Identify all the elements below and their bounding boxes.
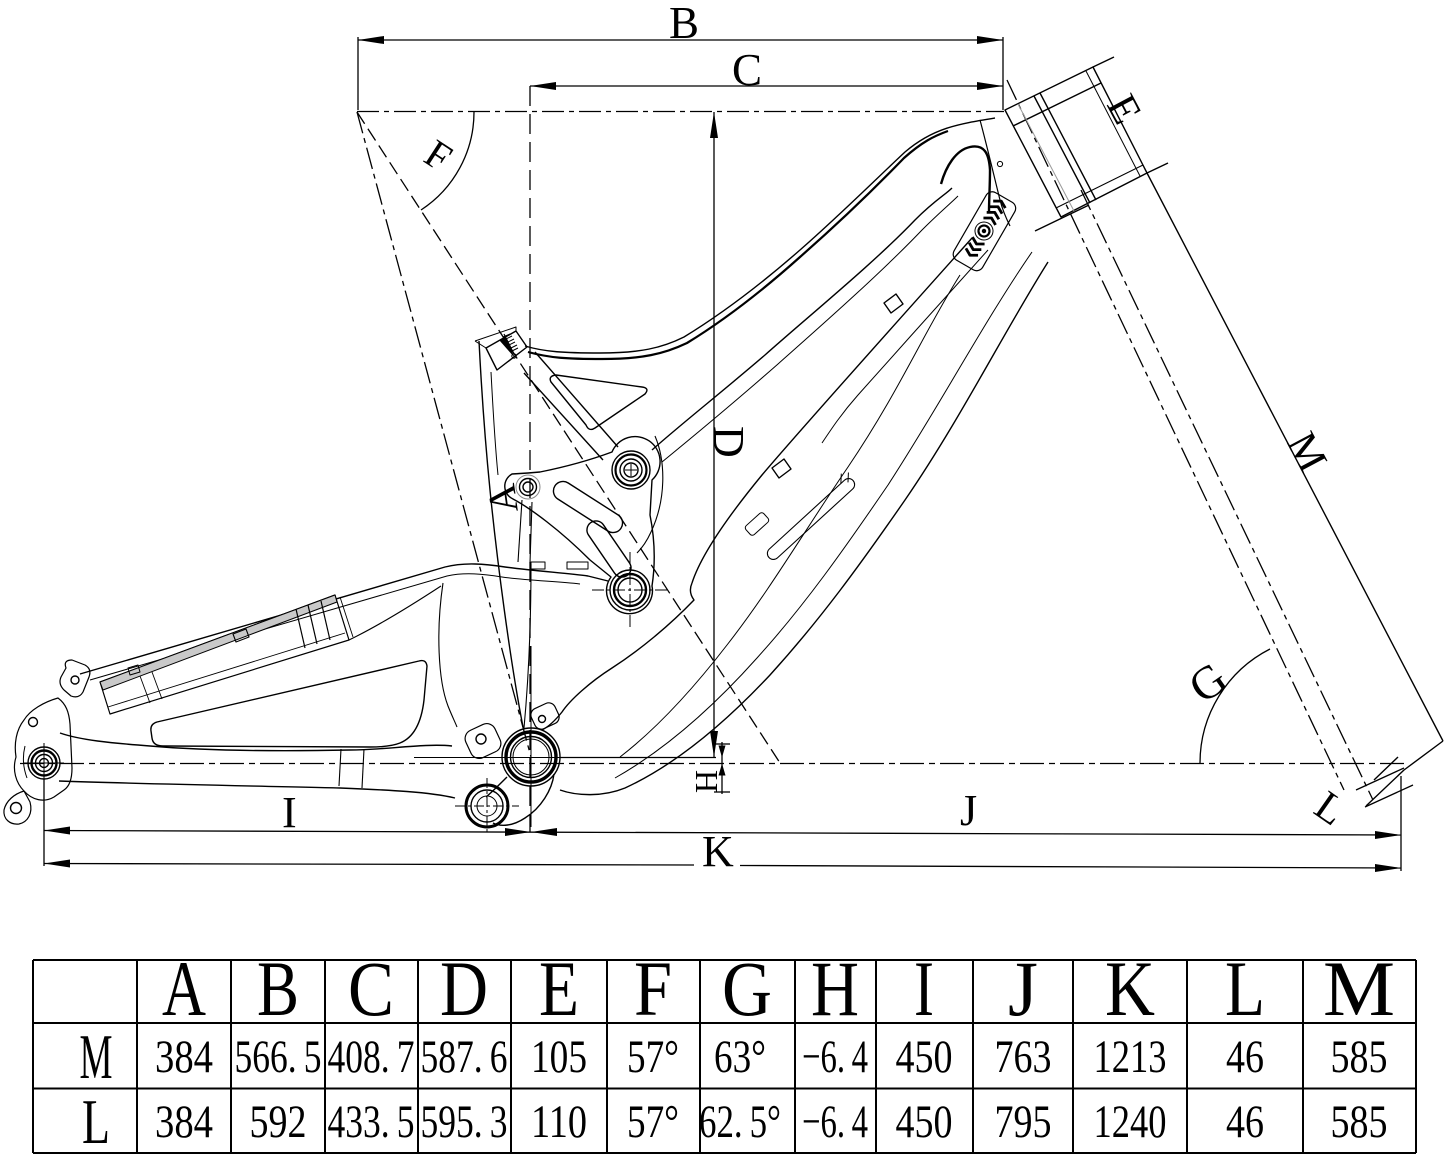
svg-text:E: E [1097, 87, 1150, 131]
svg-text:585: 585 [1331, 1096, 1388, 1148]
svg-text:592: 592 [250, 1096, 307, 1148]
svg-text:L: L [1306, 783, 1353, 835]
svg-text:450: 450 [896, 1031, 953, 1083]
svg-text:G: G [1179, 652, 1235, 713]
svg-text:384: 384 [155, 1096, 213, 1148]
svg-text:I: I [282, 788, 297, 837]
svg-text:−6. 4: −6. 4 [802, 1031, 868, 1083]
svg-text:K: K [1105, 945, 1155, 1032]
svg-text:57°: 57° [627, 1096, 679, 1148]
svg-text:E: E [539, 945, 579, 1032]
svg-text:63°: 63° [714, 1031, 766, 1083]
svg-text:57°: 57° [627, 1031, 679, 1083]
svg-text:F: F [417, 130, 460, 180]
svg-text:M: M [1323, 945, 1395, 1032]
svg-text:J: J [960, 786, 977, 835]
svg-text:1240: 1240 [1094, 1096, 1167, 1148]
svg-text:433. 5: 433. 5 [328, 1096, 415, 1148]
svg-text:105: 105 [531, 1031, 587, 1083]
svg-text:763: 763 [995, 1031, 1052, 1083]
svg-text:46: 46 [1226, 1096, 1264, 1148]
svg-text:B: B [669, 0, 699, 48]
svg-text:B: B [257, 945, 299, 1032]
svg-text:585: 585 [1331, 1031, 1388, 1083]
svg-text:L: L [82, 1086, 110, 1157]
svg-text:62. 5°: 62. 5° [699, 1096, 781, 1148]
svg-text:C: C [732, 45, 762, 95]
svg-text:46: 46 [1226, 1031, 1264, 1083]
svg-text:G: G [722, 945, 772, 1032]
svg-text:595. 3: 595. 3 [421, 1096, 508, 1148]
svg-text:F: F [634, 945, 672, 1032]
svg-text:795: 795 [995, 1096, 1052, 1148]
svg-text:384: 384 [155, 1031, 213, 1083]
svg-text:110: 110 [531, 1096, 587, 1148]
svg-text:D: D [440, 945, 488, 1032]
svg-text:L: L [1225, 945, 1265, 1032]
svg-text:M: M [1277, 425, 1335, 480]
svg-text:D: D [704, 426, 753, 458]
svg-text:K: K [702, 827, 734, 876]
svg-text:C: C [348, 945, 394, 1032]
svg-text:−6. 4: −6. 4 [802, 1096, 868, 1148]
svg-text:I: I [914, 945, 934, 1032]
svg-text:H: H [689, 770, 725, 793]
svg-text:1213: 1213 [1094, 1031, 1167, 1083]
svg-text:J: J [1008, 945, 1038, 1032]
svg-text:408. 7: 408. 7 [328, 1031, 415, 1083]
svg-text:450: 450 [896, 1096, 953, 1148]
svg-text:A: A [162, 945, 206, 1032]
svg-text:566. 5: 566. 5 [235, 1031, 322, 1083]
svg-text:H: H [811, 945, 859, 1032]
svg-text:M: M [80, 1021, 113, 1092]
svg-text:587. 6: 587. 6 [421, 1031, 508, 1083]
